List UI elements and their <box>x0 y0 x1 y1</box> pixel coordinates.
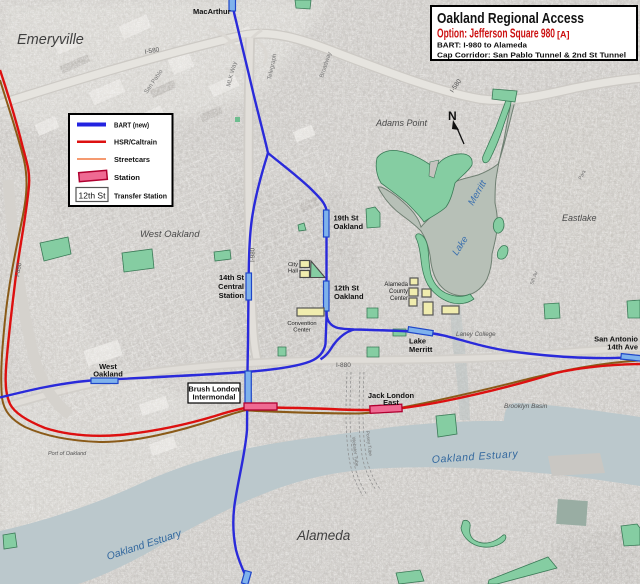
svg-text:Eastlake: Eastlake <box>562 213 597 223</box>
svg-text:BART (new): BART (new) <box>114 121 149 130</box>
svg-text:City: City <box>288 262 298 268</box>
svg-text:12th St: 12th St <box>79 190 107 200</box>
svg-text:Emeryville: Emeryville <box>17 32 84 48</box>
svg-text:Intermondal: Intermondal <box>193 393 236 402</box>
svg-text:Merritt: Merritt <box>409 345 433 354</box>
svg-text:County: County <box>389 289 408 295</box>
svg-text:Convention: Convention <box>287 321 316 327</box>
svg-text:Transfer Station: Transfer Station <box>114 191 167 200</box>
svg-text:East: East <box>383 398 399 407</box>
svg-text:14th Ave: 14th Ave <box>607 343 638 352</box>
svg-text:I-980: I-980 <box>250 247 257 262</box>
svg-text:HSR/Caltrain: HSR/Caltrain <box>114 138 157 147</box>
svg-text:Center: Center <box>293 328 310 334</box>
svg-text:Adams Point: Adams Point <box>375 118 428 128</box>
svg-text:BART: I-980 to Alameda: BART: I-980 to Alameda <box>437 41 528 50</box>
svg-text:Station: Station <box>219 291 245 300</box>
svg-text:N: N <box>448 109 457 123</box>
svg-text:West Oakland: West Oakland <box>140 229 200 240</box>
svg-text:Alameda: Alameda <box>296 528 351 543</box>
svg-text:Station: Station <box>114 173 140 182</box>
svg-text:Oakland Regional Access: Oakland Regional Access <box>437 10 584 27</box>
svg-text:Port of Oakland: Port of Oakland <box>48 451 87 457</box>
svg-text:Streetcars: Streetcars <box>114 155 150 164</box>
svg-text:14th St: 14th St <box>219 273 245 282</box>
svg-text:Oakland: Oakland <box>93 369 123 378</box>
svg-text:Brooklyn Basin: Brooklyn Basin <box>504 403 548 410</box>
svg-text:Laney College: Laney College <box>456 331 496 338</box>
svg-text:Cap Corridor: San Pablo Tunnel: Cap Corridor: San Pablo Tunnel & 2nd St … <box>437 51 626 60</box>
svg-text:MacArthur: MacArthur <box>193 7 231 16</box>
svg-text:I-880: I-880 <box>336 362 351 369</box>
svg-text:Option: Jefferson Square 980: Option: Jefferson Square 980 <box>437 26 555 41</box>
svg-text:[A]: [A] <box>557 30 570 40</box>
svg-text:Alameda: Alameda <box>384 282 408 288</box>
svg-text:Oakland: Oakland <box>334 222 364 231</box>
svg-text:Center: Center <box>390 296 408 302</box>
svg-text:Central: Central <box>218 282 244 291</box>
svg-text:Oakland: Oakland <box>334 292 364 301</box>
svg-text:Hall: Hall <box>288 269 298 275</box>
